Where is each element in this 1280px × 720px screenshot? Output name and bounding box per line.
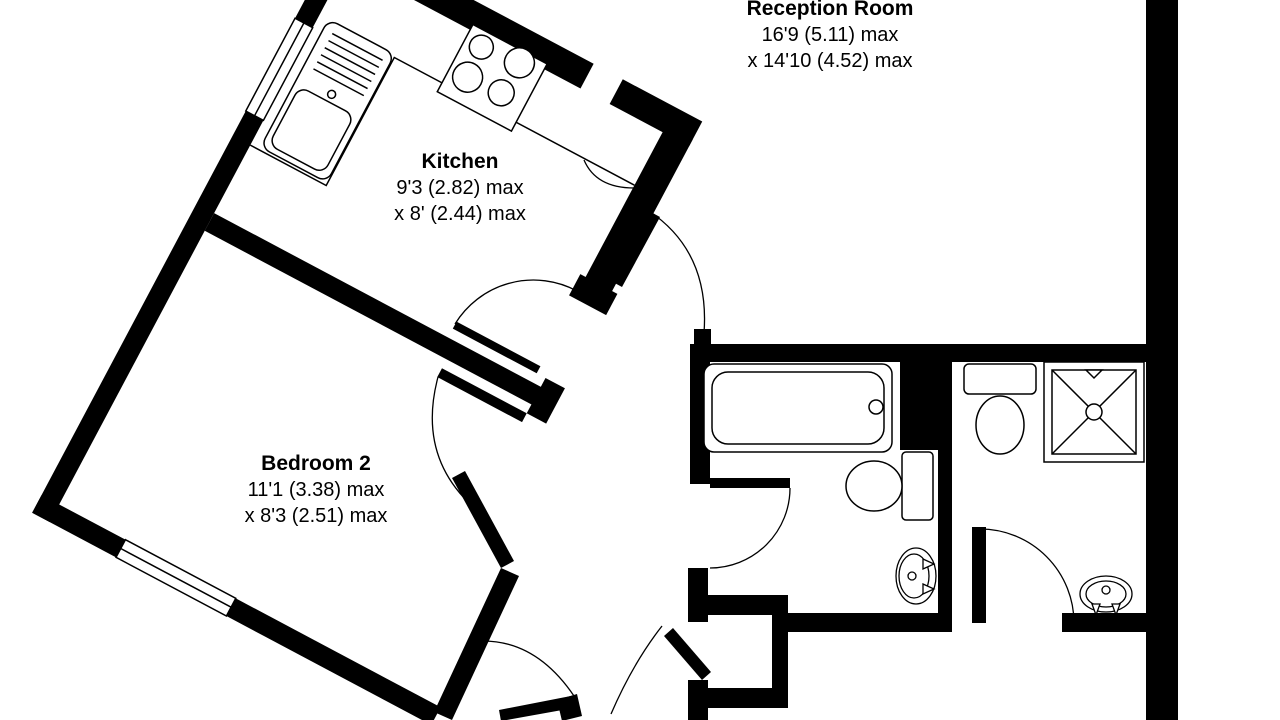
bathroom1-door-leaf bbox=[710, 478, 790, 488]
floor-plan: Reception Room 16'9 (5.11) max x 14'10 (… bbox=[0, 0, 1280, 720]
shower-room-door-arc bbox=[980, 529, 1074, 623]
shower-icon bbox=[1044, 362, 1144, 462]
reception-door-arc bbox=[649, 211, 705, 333]
bedroom-2-label: Bedroom 2 11'1 (3.38) max x 8'3 (2.51) m… bbox=[196, 451, 436, 529]
bathtub-icon bbox=[704, 364, 892, 452]
toilet2-icon bbox=[964, 364, 1036, 454]
room-dimensions: x 8' (2.44) max bbox=[340, 201, 580, 227]
room-name: Reception Room bbox=[640, 0, 1020, 22]
bathroom1-door-arc bbox=[710, 488, 790, 568]
kitchen-door-arc bbox=[455, 280, 577, 324]
room-dimensions: 11'1 (3.38) max bbox=[196, 477, 436, 503]
kitchen-label: Kitchen 9'3 (2.82) max x 8' (2.44) max bbox=[340, 149, 580, 227]
entrance-door-arc bbox=[481, 641, 574, 696]
hall-wall-diagonal bbox=[452, 471, 514, 568]
room-dimensions: x 8'3 (2.51) max bbox=[196, 503, 436, 529]
closet-door-leaf bbox=[664, 628, 711, 680]
bedroom-window bbox=[116, 540, 236, 616]
reception-kitchen-door-arc bbox=[584, 160, 634, 188]
bathroom-door-arcs bbox=[611, 488, 1074, 714]
shower-room-door-leaf bbox=[972, 527, 986, 623]
room-name: Kitchen bbox=[340, 149, 580, 175]
room-dimensions: 9'3 (2.82) max bbox=[340, 175, 580, 201]
basin2-icon bbox=[1080, 576, 1132, 615]
wing-walls bbox=[32, 0, 741, 720]
reception-room-label: Reception Room 16'9 (5.11) max x 14'10 (… bbox=[640, 0, 1020, 74]
room-dimensions: x 14'10 (4.52) max bbox=[640, 48, 1020, 74]
room-dimensions: 16'9 (5.11) max bbox=[640, 22, 1020, 48]
floor-plan-drawing bbox=[0, 0, 1280, 720]
rotated-wing bbox=[32, 0, 741, 720]
room-name: Bedroom 2 bbox=[196, 451, 436, 477]
toilet-icon bbox=[846, 452, 933, 520]
closet-door-arc bbox=[611, 626, 662, 714]
basin-icon bbox=[896, 548, 936, 604]
